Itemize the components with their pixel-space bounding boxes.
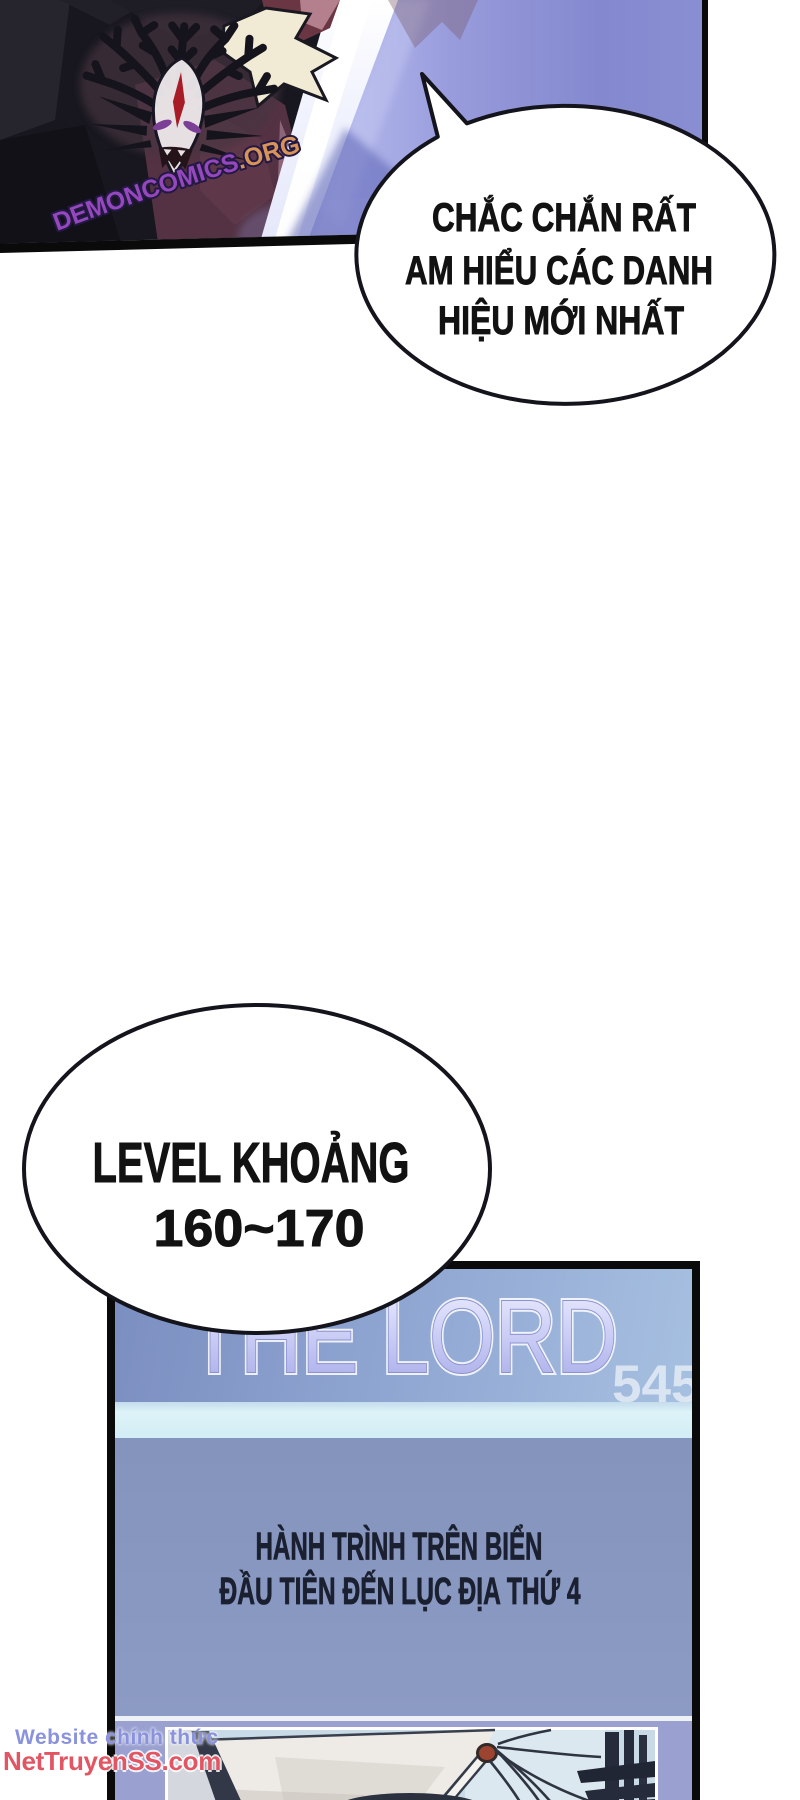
svg-text:CHẮC CHẮN RẤT: CHẮC CHẮN RẤT xyxy=(432,194,696,240)
svg-text:AM HIỂU CÁC DANH: AM HIỂU CÁC DANH xyxy=(405,246,713,293)
svg-text:HÀNH TRÌNH TRÊN BIỂN: HÀNH TRÌNH TRÊN BIỂN xyxy=(256,1524,543,1569)
svg-text:160~170: 160~170 xyxy=(154,1200,365,1258)
svg-text:LEVEL KHOẢNG: LEVEL KHOẢNG xyxy=(93,1130,410,1195)
svg-text:HIỆU MỚI NHẤT: HIỆU MỚI NHẤT xyxy=(438,297,684,343)
svg-text:ĐẦU TIÊN ĐẾN LỤC ĐỊA THỨ 4: ĐẦU TIÊN ĐẾN LỤC ĐỊA THỨ 4 xyxy=(220,1569,581,1613)
